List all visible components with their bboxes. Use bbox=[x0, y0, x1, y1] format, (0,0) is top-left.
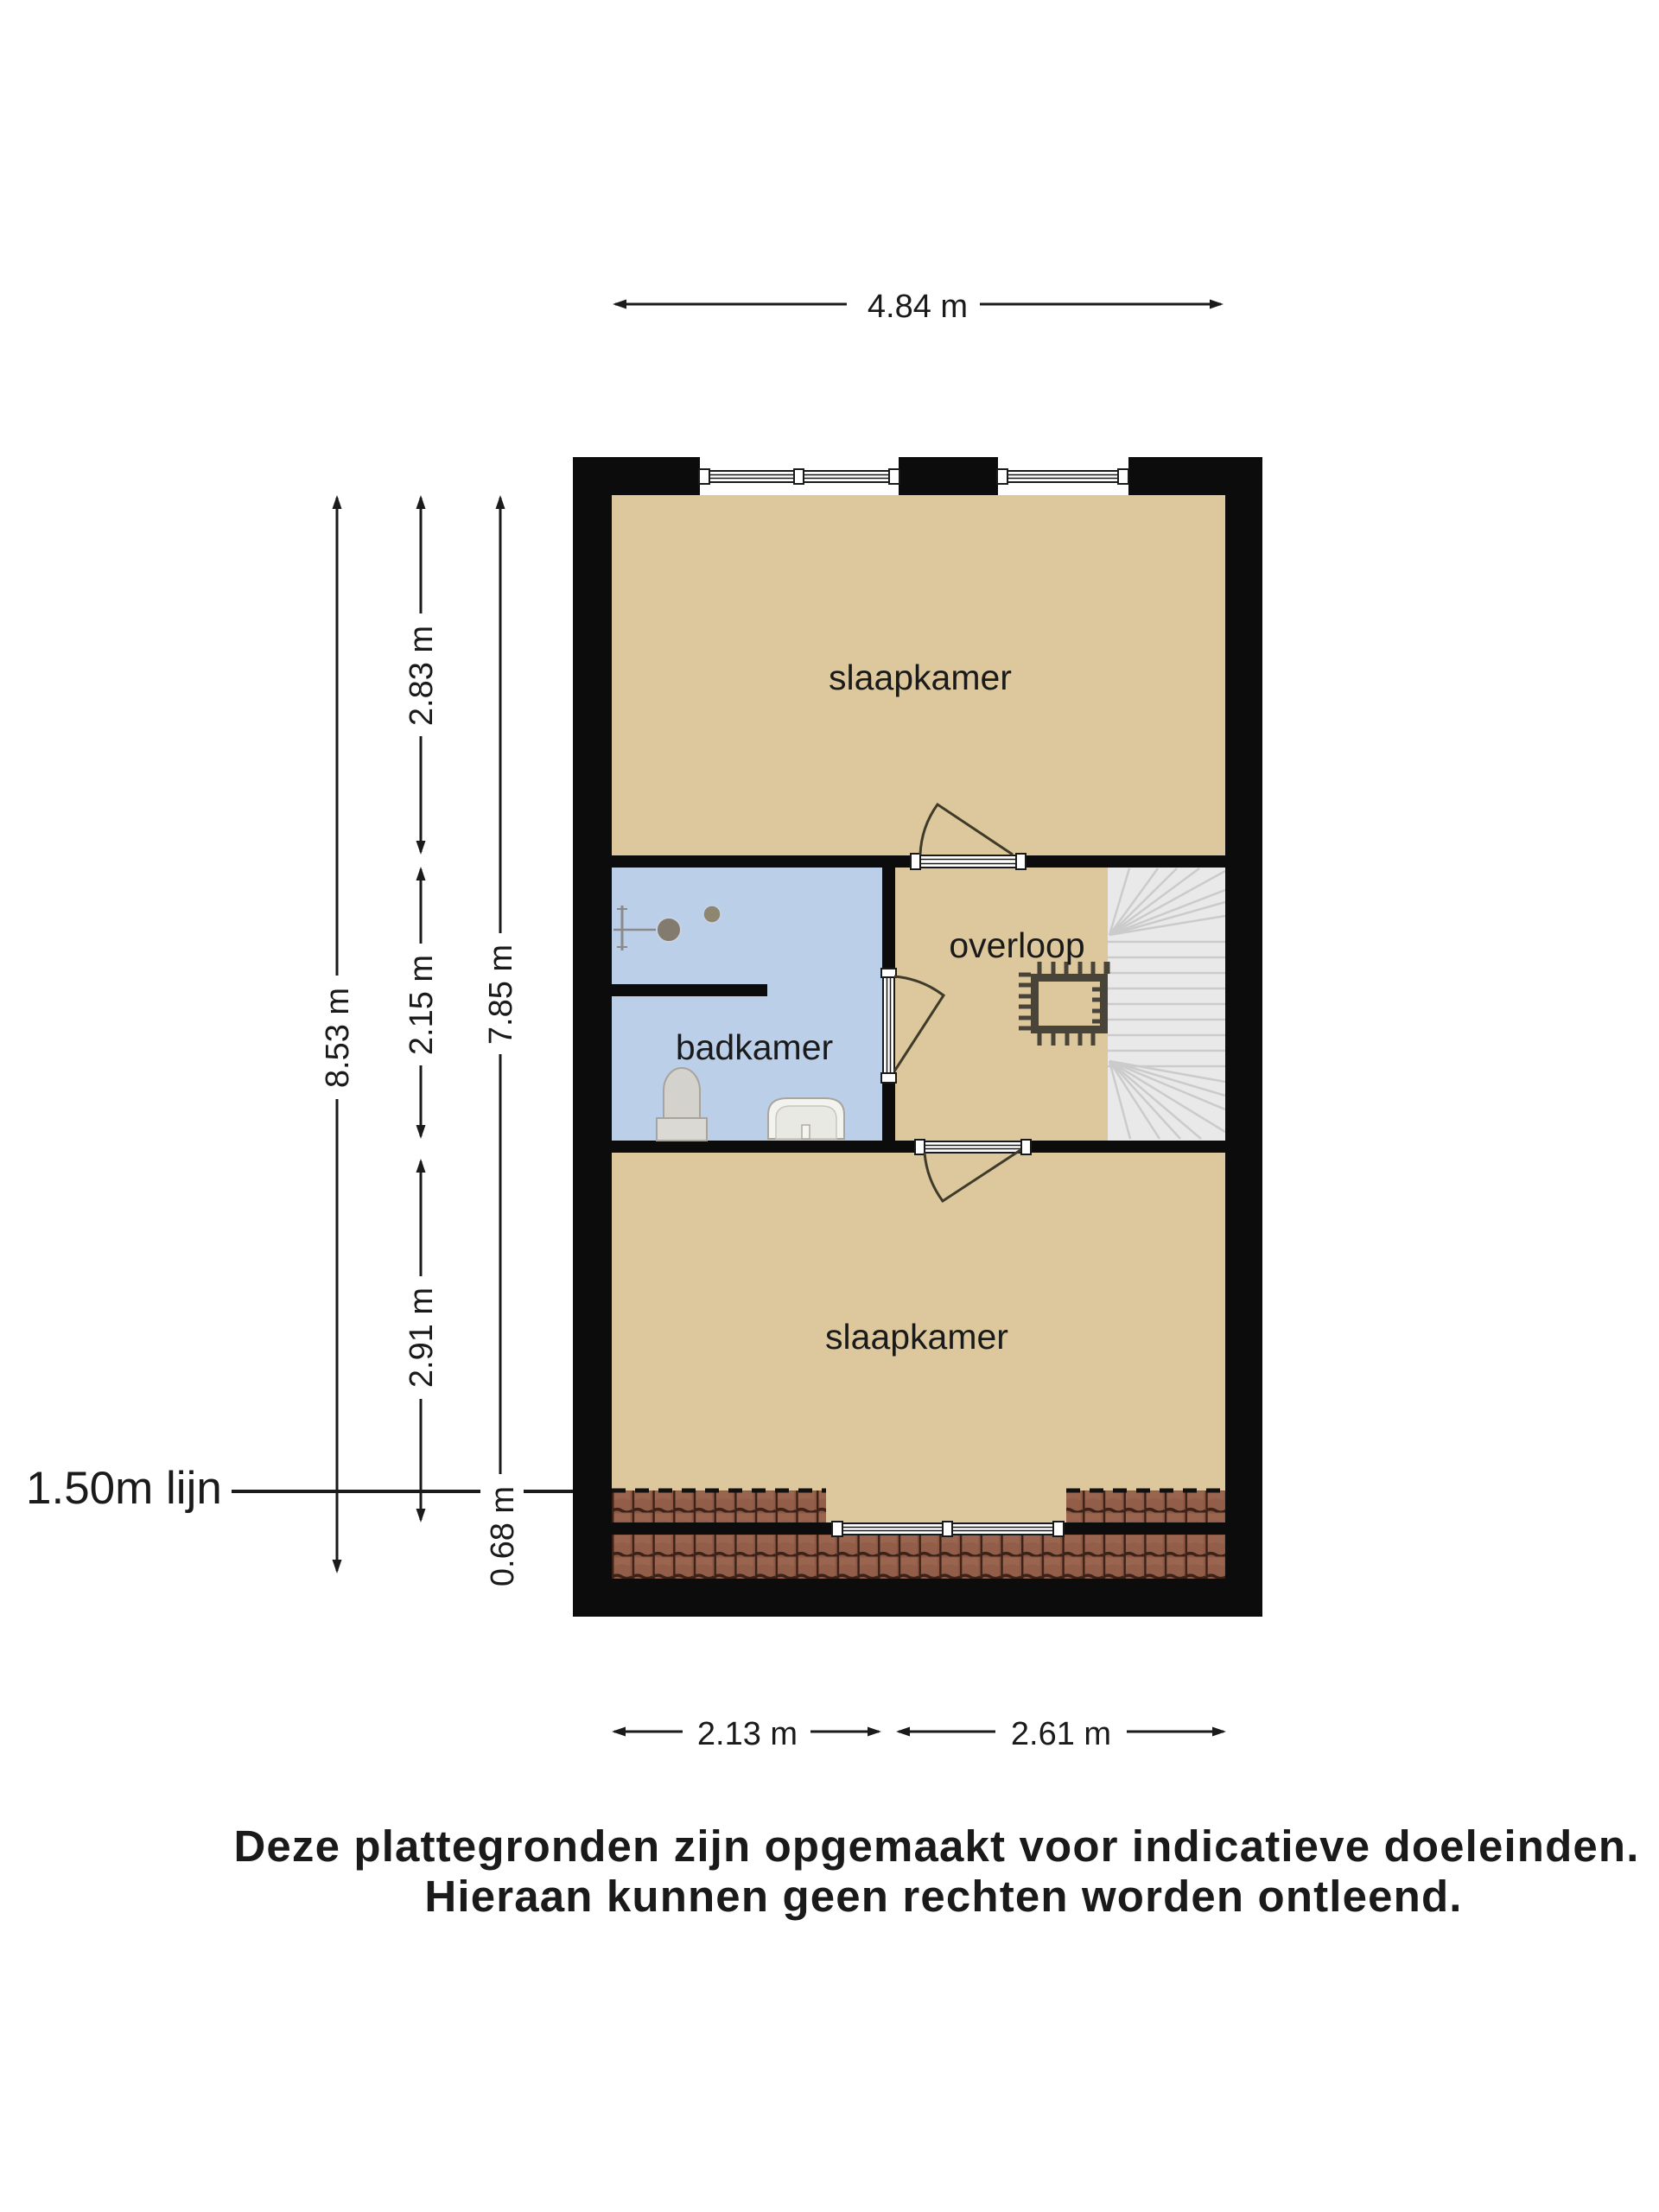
svg-text:badkamer: badkamer bbox=[676, 1027, 833, 1067]
svg-text:slaapkamer: slaapkamer bbox=[829, 658, 1012, 697]
svg-text:8.53 m: 8.53 m bbox=[320, 988, 356, 1088]
svg-text:slaapkamer: slaapkamer bbox=[825, 1317, 1008, 1357]
svg-text:2.83 m: 2.83 m bbox=[404, 626, 440, 726]
svg-text:0.68 m: 0.68 m bbox=[485, 1486, 521, 1586]
svg-text:2.15 m: 2.15 m bbox=[404, 955, 440, 1055]
svg-text:overloop: overloop bbox=[949, 925, 1084, 965]
svg-text:4.84 m: 4.84 m bbox=[868, 289, 968, 325]
svg-text:Hieraan kunnen geen rechten wo: Hieraan kunnen geen rechten worden ontle… bbox=[424, 1872, 1462, 1921]
svg-text:1.50m lijn: 1.50m lijn bbox=[26, 1463, 222, 1514]
svg-text:2.13 m: 2.13 m bbox=[697, 1716, 798, 1752]
svg-text:2.91 m: 2.91 m bbox=[404, 1287, 440, 1388]
svg-text:7.85 m: 7.85 m bbox=[483, 944, 519, 1045]
svg-text:Deze plattegronden zijn opgema: Deze plattegronden zijn opgemaakt voor i… bbox=[233, 1821, 1639, 1871]
svg-text:2.61 m: 2.61 m bbox=[1011, 1716, 1111, 1752]
